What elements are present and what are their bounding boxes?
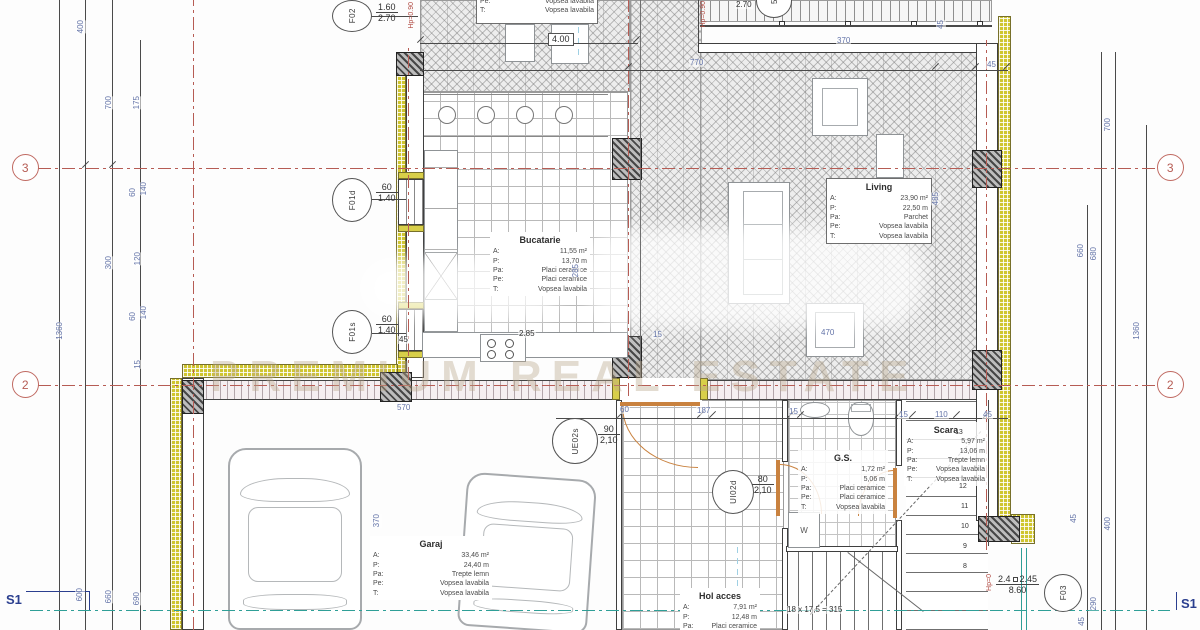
room-spec-row: P: 5,06 m bbox=[801, 475, 885, 484]
spec-key: Pe: bbox=[373, 579, 384, 588]
room-specs: Pe: Vopsea lavabila T: Vopsea lavabila bbox=[480, 0, 594, 16]
dim-line bbox=[1146, 125, 1147, 630]
sink bbox=[800, 402, 830, 418]
step-number: 5 bbox=[770, 0, 779, 3]
section-bracket bbox=[89, 591, 90, 610]
spec-value: 7,91 m² bbox=[733, 603, 757, 612]
dim-label: 290 bbox=[1089, 597, 1099, 610]
dim-label: 660 bbox=[104, 590, 114, 603]
bar-stool bbox=[555, 106, 573, 124]
dim-label: 140 bbox=[139, 182, 149, 195]
spec-key: T: bbox=[373, 589, 378, 598]
axis-number: 3 bbox=[1167, 161, 1174, 175]
living-right-insulation bbox=[998, 16, 1011, 520]
room-spec-row: T: Vopsea lavabila bbox=[907, 475, 985, 484]
washing-machine-label: W bbox=[800, 526, 808, 535]
section-label-s1-left: S1 bbox=[6, 592, 22, 607]
room-spec-row: P: 13,06 m bbox=[907, 447, 985, 456]
dim-label: 300 bbox=[104, 256, 114, 269]
axis-number: 2 bbox=[1167, 378, 1174, 392]
spec-value: Trepte lemn bbox=[452, 570, 489, 579]
dim-label: 700 bbox=[104, 96, 114, 109]
axis-line-vertical bbox=[628, 0, 629, 396]
size-width: 60 bbox=[376, 182, 398, 193]
wall-pier bbox=[972, 350, 1002, 390]
room-spec-row: T: Vopsea lavabila bbox=[373, 589, 489, 598]
room-specs: A: 23,90 m² P: 22,50 m Pa: Parchet Pe: V… bbox=[830, 194, 928, 241]
stair-step-number: 11 bbox=[961, 503, 968, 510]
spec-value: 23,90 m² bbox=[900, 194, 928, 203]
door-label-ui02d: UI02d bbox=[712, 470, 754, 514]
dim-label: 370 bbox=[372, 514, 382, 527]
wall-pier bbox=[972, 150, 1002, 188]
spec-key: P: bbox=[373, 561, 380, 570]
counter-edge bbox=[424, 94, 608, 95]
garage-left-insulation bbox=[170, 378, 182, 630]
size-height: 1.40 bbox=[376, 193, 398, 203]
size-part: 2.4 bbox=[998, 574, 1011, 584]
door-size-ue02s: 90 2,10 bbox=[598, 424, 620, 446]
dim-line bbox=[420, 70, 1008, 71]
room-title: Hol acces bbox=[683, 590, 757, 602]
dim-label: 45 bbox=[398, 336, 409, 344]
dim-label: 15 bbox=[898, 411, 909, 419]
size-height: 8.60 bbox=[996, 585, 1039, 595]
floor-plan-canvas: W 3 3 bbox=[0, 0, 1200, 630]
burner bbox=[505, 339, 514, 348]
door-label-text: UE02s bbox=[571, 428, 580, 455]
parapet-height-note: Hp=0.90 bbox=[700, 1, 707, 28]
spec-key: Pa: bbox=[801, 484, 812, 493]
axis-line-3 bbox=[38, 168, 1162, 169]
car-roof bbox=[479, 523, 574, 592]
dim-label: 45 bbox=[1069, 514, 1079, 523]
section-line-s1 bbox=[30, 610, 1170, 611]
room-box-scara: Scara A: 5,97 m² P: 13,06 m Pa: Trepte l… bbox=[904, 422, 988, 486]
dim-line bbox=[1101, 52, 1102, 630]
dim-label: 570 bbox=[396, 404, 411, 412]
spec-value: Placi ceramice bbox=[839, 484, 885, 493]
dim-label: 60 bbox=[128, 312, 138, 321]
spec-key: Pa: bbox=[907, 456, 918, 465]
dim-label: 60 bbox=[128, 188, 138, 197]
spec-value: 5,06 m bbox=[864, 475, 885, 484]
room-spec-row: T: Vopsea lavabila bbox=[801, 503, 885, 512]
car-rear-window bbox=[243, 594, 347, 610]
axis-marker-3-right: 3 bbox=[1157, 154, 1184, 181]
room-box-gs: G.S. A: 1,72 m² P: 5,06 m Pa: Placi cera… bbox=[798, 450, 888, 514]
spec-value: Vopsea lavabila bbox=[879, 222, 928, 231]
size-height: 1.40 bbox=[376, 325, 398, 335]
dim-line bbox=[1115, 52, 1116, 630]
dim-label: 680 bbox=[1089, 247, 1099, 260]
dim-label: 370 bbox=[836, 37, 851, 45]
spec-key: A: bbox=[493, 247, 500, 256]
wall-pier bbox=[978, 516, 1020, 542]
dim-label: 1360 bbox=[55, 322, 65, 340]
spec-key: Pa: bbox=[830, 213, 841, 222]
room-spec-row: Pe: Vopsea lavabila bbox=[830, 222, 928, 231]
dim-label: 1360 bbox=[1132, 322, 1142, 340]
washing-machine: W bbox=[788, 512, 820, 548]
terrace-railing bbox=[700, 25, 992, 27]
size-height: 2,10 bbox=[598, 435, 620, 445]
dim-label: 110 bbox=[934, 411, 949, 419]
spec-key: P: bbox=[830, 204, 837, 213]
side-table bbox=[876, 134, 904, 178]
room-spec-row: Pa: Trepte lemn bbox=[907, 456, 985, 465]
window-size-f02: 1.60 2.70 bbox=[376, 2, 398, 24]
size-width: 60 bbox=[376, 314, 398, 325]
size-height: 2.70 bbox=[376, 13, 398, 23]
bar-stool bbox=[477, 106, 495, 124]
counter-edge bbox=[424, 136, 608, 137]
room-spec-row: A: 23,90 m² bbox=[830, 194, 928, 203]
spec-key: P: bbox=[801, 475, 808, 484]
room-spec-row: A: 5,97 m² bbox=[907, 437, 985, 446]
dim-label: 400 bbox=[76, 20, 86, 33]
spec-key: A: bbox=[801, 465, 808, 474]
room-spec-row: Pa: Trepte lemn bbox=[373, 570, 489, 579]
dim-label: 140 bbox=[139, 306, 149, 319]
room-specs: A: 7,91 m² P: 12,48 m Pa: Placi ceramice bbox=[683, 603, 757, 630]
window-label-f02: F02 bbox=[332, 0, 372, 32]
spec-key: T: bbox=[801, 503, 806, 512]
spec-value: 5,97 m² bbox=[961, 437, 985, 446]
spec-value: Vopsea lavabila bbox=[440, 589, 489, 598]
dim-line bbox=[112, 0, 113, 630]
window-label-f01s: F01s bbox=[332, 310, 372, 354]
spec-key: P: bbox=[683, 613, 690, 622]
spec-key: A: bbox=[907, 437, 914, 446]
dim-label: 690 bbox=[132, 592, 142, 605]
room-spec-row: P: 22,50 m bbox=[830, 204, 928, 213]
size-width: 90 bbox=[598, 424, 620, 435]
size-width: 1.60 bbox=[376, 2, 398, 13]
dim-label: 45 bbox=[936, 20, 946, 29]
parapet-height-note: Hp=0.90 bbox=[408, 2, 415, 29]
window-size-f03: 2.42.45 8.60 bbox=[996, 574, 1039, 596]
room-box-living: Living A: 23,90 m² P: 22,50 m Pa: Parche… bbox=[826, 178, 932, 244]
spec-value: 1,72 m² bbox=[861, 465, 885, 474]
spec-key: Pe: bbox=[801, 493, 812, 502]
spec-key: P: bbox=[493, 257, 500, 266]
spec-key: A: bbox=[683, 603, 690, 612]
dim-label: 187 bbox=[696, 407, 711, 415]
room-title: G.S. bbox=[801, 452, 885, 464]
spec-value: Vopsea lavabila bbox=[538, 285, 587, 294]
room-spec-row: A: 33,46 m² bbox=[373, 551, 489, 560]
room-spec-row: Pa: Placi ceramice bbox=[801, 484, 885, 493]
dim-label: 15 bbox=[788, 408, 799, 416]
spec-key: Pe: bbox=[830, 222, 841, 231]
car bbox=[228, 448, 362, 630]
spec-value: Placi ceramice bbox=[711, 622, 757, 630]
spec-value: Vopsea lavabila bbox=[836, 503, 885, 512]
dim-label: 400 bbox=[1103, 517, 1113, 530]
window-size-f01s: 60 1.40 bbox=[376, 314, 398, 336]
room-spec-row: T: Vopsea lavabila bbox=[493, 285, 587, 294]
window-f01d bbox=[398, 179, 424, 225]
dim-label: 2.70 bbox=[735, 1, 753, 9]
window-label-f03: F03 bbox=[1044, 574, 1082, 612]
window-size-f01d: 60 1.40 bbox=[376, 182, 398, 204]
window-jamb bbox=[398, 172, 424, 179]
room-title: Living bbox=[830, 181, 928, 193]
dim-label: 175 bbox=[132, 96, 142, 109]
wall-pier bbox=[612, 138, 642, 180]
bath-stair-wall-lower bbox=[896, 520, 902, 630]
spec-value: 33,46 m² bbox=[461, 551, 489, 560]
wall-centerline bbox=[408, 46, 409, 380]
dim-label: 15 bbox=[652, 331, 663, 339]
spec-value: Vopsea lavabila bbox=[545, 6, 594, 15]
wall-pier bbox=[396, 52, 424, 76]
dim-label: 45 bbox=[1077, 617, 1087, 626]
spec-value: Vopsea lavabila bbox=[936, 465, 985, 474]
kitchen-living-boundary bbox=[640, 0, 641, 378]
room-spec-row: Pe: Vopsea lavabila bbox=[373, 579, 489, 588]
spec-key: T: bbox=[493, 285, 498, 294]
window-label-text: F03 bbox=[1059, 585, 1068, 600]
room-spec-row: Pa: Placi ceramice bbox=[683, 622, 757, 630]
toilet-tank bbox=[851, 404, 871, 412]
watermark-tagline: PREMIUM REAL ESTATE bbox=[210, 352, 918, 402]
stair-treads-lower-flight bbox=[798, 552, 900, 630]
room-spec-row: Pe: Placi ceramice bbox=[801, 493, 885, 502]
dim-label: 4.00 bbox=[548, 33, 574, 46]
axis-line-vertical bbox=[193, 0, 194, 630]
car-windshield bbox=[240, 478, 349, 501]
stair-step-number: 10 bbox=[961, 523, 969, 530]
spec-value: Vopsea lavabila bbox=[440, 579, 489, 588]
size-height: 2,10 bbox=[752, 485, 774, 495]
dim-label: 660 bbox=[1076, 244, 1086, 257]
spec-value: 12,48 m bbox=[732, 613, 757, 622]
axis-number: 2 bbox=[22, 378, 29, 392]
dim-label: 2.85 bbox=[518, 330, 536, 338]
room-title: Bucatarie bbox=[493, 234, 587, 246]
spec-value: 13,06 m bbox=[960, 447, 985, 456]
dim-line bbox=[140, 40, 141, 630]
dim-line bbox=[420, 43, 638, 44]
parapet-height-note: Hp=0 bbox=[986, 574, 993, 591]
room-spec-row: A: 1,72 m² bbox=[801, 465, 885, 474]
spec-key: Pe: bbox=[907, 465, 918, 474]
toilet bbox=[848, 402, 874, 436]
bar-stool bbox=[516, 106, 534, 124]
axis-marker-2-left: 2 bbox=[12, 371, 39, 398]
room-box-top-partial: Pe: Vopsea lavabila T: Vopsea lavabila bbox=[476, 0, 598, 24]
dim-line bbox=[85, 0, 86, 630]
armchair-seat bbox=[822, 88, 858, 126]
dim-line bbox=[1087, 205, 1088, 630]
room-spec-row: T: Vopsea lavabila bbox=[480, 6, 594, 15]
size-width: 80 bbox=[752, 474, 774, 485]
door-size-ui02d: 80 2,10 bbox=[752, 474, 774, 496]
size-part: 2.45 bbox=[1020, 574, 1038, 584]
spec-value: Placi ceramice bbox=[839, 493, 885, 502]
dim-label: 15 bbox=[133, 360, 143, 369]
room-specs: A: 5,97 m² P: 13,06 m Pa: Trepte lemn Pe… bbox=[907, 437, 985, 484]
spec-key: Pa: bbox=[493, 266, 504, 275]
window-label-text: F02 bbox=[348, 8, 357, 23]
dim-label: 700 bbox=[1103, 118, 1113, 131]
dim-label: 470 bbox=[820, 329, 835, 337]
door-label-text: UI02d bbox=[729, 480, 738, 504]
window-label-text: F01s bbox=[348, 322, 357, 342]
spec-key: A: bbox=[373, 551, 380, 560]
room-spec-row: Pa: Parchet bbox=[830, 213, 928, 222]
room-specs: A: 1,72 m² P: 5,06 m Pa: Placi ceramice … bbox=[801, 465, 885, 512]
spec-key: P: bbox=[907, 447, 914, 456]
room-title: Garaj bbox=[373, 538, 489, 550]
sill-mark bbox=[1013, 577, 1018, 582]
spec-key: Pa: bbox=[373, 570, 384, 579]
stair-step-number: 13 bbox=[955, 429, 963, 436]
window-label-text: F01d bbox=[348, 190, 357, 210]
spec-key: Pe: bbox=[493, 275, 504, 284]
spec-value: 11,55 m² bbox=[560, 247, 587, 256]
room-spec-row: P: 12,48 m bbox=[683, 613, 757, 622]
room-spec-row: A: 7,91 m² bbox=[683, 603, 757, 612]
dim-label: 45 bbox=[982, 411, 993, 419]
axis-marker-3-left: 3 bbox=[12, 154, 39, 181]
section-label-s1-right: S1 bbox=[1181, 596, 1197, 611]
stair-formula: 18 x 17,5 = 315 bbox=[786, 606, 843, 614]
dim-label: 770 bbox=[689, 59, 704, 67]
room-box-hol: Hol acces A: 7,91 m² P: 12,48 m Pa: Plac… bbox=[680, 588, 760, 630]
dim-label: 285 bbox=[571, 264, 581, 277]
burner bbox=[487, 339, 496, 348]
dim-label: 600 bbox=[75, 588, 85, 601]
car-roof bbox=[248, 507, 342, 582]
axis-marker-2-right: 2 bbox=[1157, 371, 1184, 398]
spec-value: 22,50 m bbox=[903, 204, 928, 213]
armchair bbox=[812, 78, 868, 136]
room-specs: A: 33,46 m² P: 24,40 m Pa: Trepte lemn P… bbox=[373, 551, 489, 598]
dim-label: 120 bbox=[133, 252, 143, 265]
room-spec-row: A: 11,55 m² bbox=[493, 247, 587, 256]
dim-label: 60 bbox=[619, 406, 630, 414]
spec-key: T: bbox=[830, 232, 835, 241]
axis-number: 3 bbox=[22, 161, 29, 175]
stair-right-line bbox=[988, 400, 989, 546]
spec-key: A: bbox=[830, 194, 837, 203]
room-spec-row: T: Vopsea lavabila bbox=[830, 232, 928, 241]
spec-value: Trepte lemn bbox=[948, 456, 985, 465]
room-spec-row: P: 24,40 m bbox=[373, 561, 489, 570]
spec-key: T: bbox=[907, 475, 912, 484]
dim-label: 45 bbox=[986, 61, 997, 69]
door-label-ue02s: UE02s bbox=[552, 418, 598, 464]
spec-value: Parchet bbox=[904, 213, 928, 222]
car-windshield bbox=[476, 498, 583, 525]
stair-step-number: 8 bbox=[963, 563, 967, 570]
terrace-left-edge bbox=[698, 0, 699, 43]
section-bracket bbox=[1176, 592, 1177, 610]
room-box-garaj: Garaj A: 33,46 m² P: 24,40 m Pa: Trepte … bbox=[370, 536, 492, 600]
spec-key: Pa: bbox=[683, 622, 694, 630]
window-label-f01d: F01d bbox=[332, 178, 372, 222]
spec-value: Vopsea lavabila bbox=[879, 232, 928, 241]
room-spec-row: Pe: Vopsea lavabila bbox=[907, 465, 985, 474]
dim-label: 485 bbox=[931, 192, 941, 205]
stair-step-number: 9 bbox=[963, 543, 967, 550]
stair-step-number: 12 bbox=[959, 483, 967, 490]
spec-key: T: bbox=[480, 6, 485, 15]
spec-value: 24,40 m bbox=[464, 561, 489, 570]
bar-stool bbox=[438, 106, 456, 124]
window-jamb bbox=[398, 225, 424, 232]
dim-line bbox=[59, 0, 60, 630]
room-title: Scara bbox=[907, 424, 985, 436]
